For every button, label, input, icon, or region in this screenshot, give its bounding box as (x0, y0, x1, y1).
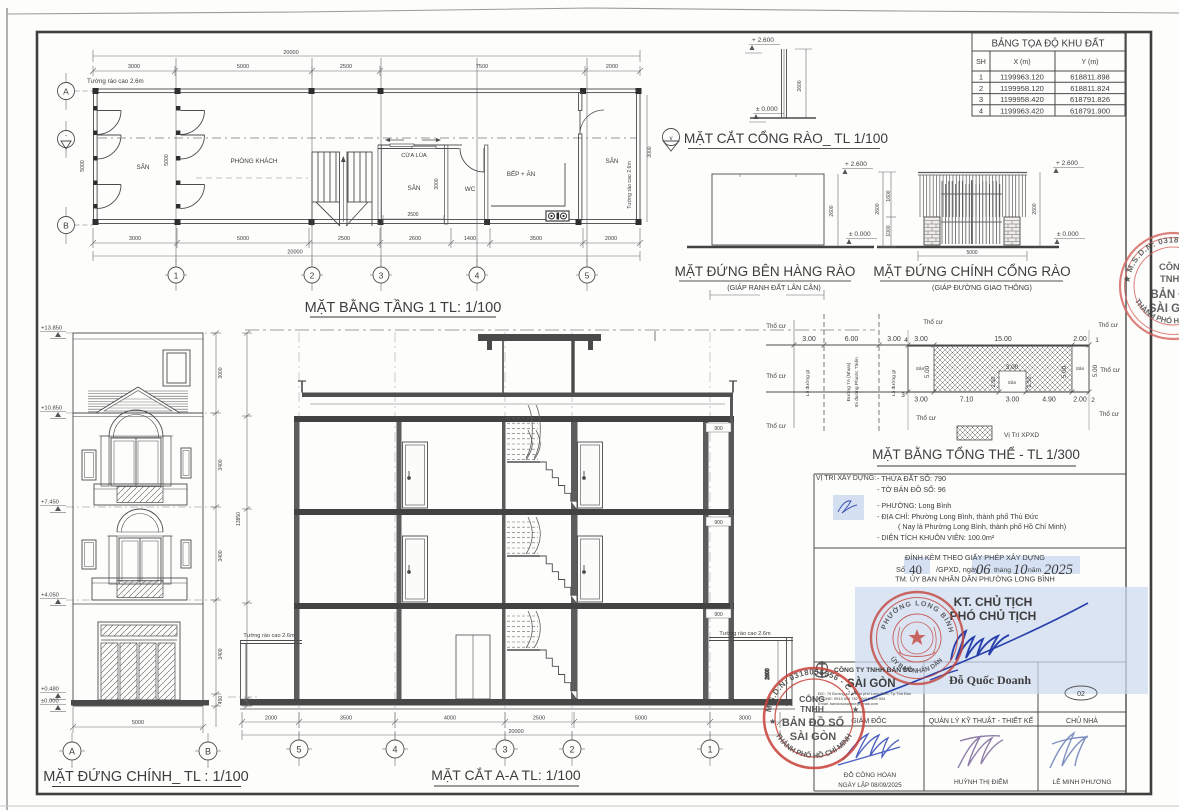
svg-text:CÔNG: CÔNG (1159, 261, 1179, 272)
svg-text:(GIÁP ĐƯỜNG GIAO THÔNG): (GIÁP ĐƯỜNG GIAO THÔNG) (932, 283, 1032, 292)
svg-text:± 0.000: ± 0.000 (1057, 231, 1079, 238)
svg-text:KT. CHỦ TỊCH: KT. CHỦ TỊCH (954, 594, 1033, 609)
svg-text:2: 2 (310, 271, 315, 281)
svg-text:3500: 3500 (340, 716, 352, 722)
svg-text:CÔNG: CÔNG (799, 693, 825, 704)
svg-text:3400: 3400 (218, 459, 224, 470)
svg-text:Đỗ Quốc Doanh: Đỗ Quốc Doanh (949, 673, 1031, 687)
svg-text:Lộ đường gt: Lộ đường gt (891, 369, 897, 396)
svg-text:5000: 5000 (132, 720, 144, 726)
svg-text:Thổ cư: Thổ cư (916, 415, 936, 422)
svg-text:2600: 2600 (875, 203, 881, 214)
svg-text:2.00: 2.00 (1073, 336, 1087, 343)
svg-text:1: 1 (979, 73, 983, 82)
svg-text:Email: bandososaigon@gmail.com: Email: bandososaigon@gmail.com (818, 701, 878, 706)
svg-text:20000: 20000 (508, 729, 523, 735)
svg-text:+ 2.600: + 2.600 (1056, 160, 1078, 167)
svg-text:Đi đường Phước Thiện: Đi đường Phước Thiện (854, 357, 860, 407)
svg-text:SÀI GÒN: SÀI GÒN (790, 730, 837, 743)
svg-text:SH: SH (976, 59, 986, 66)
svg-text:★: ★ (769, 717, 776, 726)
svg-text:1: 1 (707, 745, 712, 755)
svg-text:1: 1 (174, 271, 179, 281)
svg-text:4: 4 (979, 106, 983, 115)
svg-text:-: - (65, 133, 67, 139)
svg-text:02: 02 (1077, 691, 1085, 698)
svg-text:B: B (63, 221, 69, 231)
svg-text:900: 900 (714, 520, 723, 526)
svg-text:3.00: 3.00 (914, 397, 928, 404)
svg-text:Đường 7A (Nhựa): Đường 7A (Nhựa) (846, 362, 852, 401)
svg-text:2000: 2000 (605, 236, 617, 242)
svg-text:3000: 3000 (434, 178, 440, 189)
svg-text:20000: 20000 (287, 250, 302, 256)
svg-text:v: v (670, 136, 673, 142)
svg-text:A: A (63, 87, 69, 97)
svg-text:SÀI GÒN: SÀI GÒN (1149, 302, 1179, 315)
svg-text:Thổ cư: Thổ cư (1099, 411, 1119, 418)
svg-text:7.10: 7.10 (960, 397, 974, 404)
svg-text:3: 3 (379, 271, 384, 281)
svg-text:3.00: 3.00 (802, 336, 816, 343)
svg-text:- PHƯỜNG: Long Bình: - PHƯỜNG: Long Bình (877, 501, 951, 510)
svg-text:ĐÍNH KÈM THEO GIẤY PHÉP XÂY DỰ: ĐÍNH KÈM THEO GIẤY PHÉP XÂY DỰNG (905, 552, 1045, 562)
svg-text:3500: 3500 (530, 236, 542, 242)
svg-text:+10.850: +10.850 (41, 406, 62, 412)
svg-text:1199958.120: 1199958.120 (1000, 84, 1044, 93)
svg-text:5: 5 (296, 745, 301, 755)
svg-text:5000: 5000 (164, 154, 170, 166)
svg-text:NGÀY LẬP 08/09/2025: NGÀY LẬP 08/09/2025 (838, 782, 902, 789)
svg-text:VỊ TRÍ XÂY DỰNG:: VỊ TRÍ XÂY DỰNG: (816, 473, 876, 482)
svg-text:± 0.000: ± 0.000 (849, 231, 871, 238)
svg-text:5.00: 5.00 (924, 365, 931, 378)
svg-text:2600: 2600 (409, 236, 421, 242)
svg-text:Sân: Sân (1076, 366, 1085, 372)
svg-text:Tường rào cao 2.6m: Tường rào cao 2.6m (719, 631, 771, 637)
svg-text:X (m): X (m) (1013, 59, 1030, 66)
svg-text:MẶT CẮT A-A TL: 1/100: MẶT CẮT A-A TL: 1/100 (431, 766, 581, 783)
svg-text:3: 3 (901, 392, 905, 399)
svg-text:LÊ MINH PHƯƠNG: LÊ MINH PHƯƠNG (1053, 777, 1112, 786)
svg-text:Tường rào cao 2.6m: Tường rào cao 2.6m (243, 633, 295, 639)
svg-text:Thổ cư: Thổ cư (766, 323, 786, 330)
svg-text:2600: 2600 (797, 80, 803, 91)
svg-text:2600: 2600 (829, 205, 835, 216)
svg-text:2.50: 2.50 (991, 377, 997, 388)
svg-text:- THỬA ĐẤT SỐ: 790: - THỬA ĐẤT SỐ: 790 (877, 473, 946, 483)
svg-text:2600: 2600 (765, 668, 771, 679)
svg-text:MẶT BẰNG TỔNG THỂ - TL 1/300: MẶT BẰNG TỔNG THỂ - TL 1/300 (872, 447, 1080, 462)
svg-text:HUỲNH THỊ ĐIỂM: HUỲNH THỊ ĐIỂM (954, 777, 1008, 786)
svg-text:3.00: 3.00 (914, 336, 928, 343)
svg-text:PHÓ CHỦ TỊCH: PHÓ CHỦ TỊCH (950, 608, 1037, 623)
svg-text:MẶT ĐỨNG CHÍNH CỔNG RÀO: MẶT ĐỨNG CHÍNH CỔNG RÀO (873, 264, 1070, 279)
svg-text:2.50: 2.50 (1027, 377, 1033, 388)
svg-text:± 0.000: ± 0.000 (756, 106, 778, 113)
svg-text:Sân: Sân (1008, 380, 1017, 386)
svg-text:( Nay là Phường Long Bình, thà: ( Nay là Phường Long Bình, thành phố Hồ … (898, 522, 1066, 531)
svg-text:1000: 1000 (886, 225, 892, 236)
svg-text:2: 2 (569, 745, 574, 755)
svg-text:618791.826: 618791.826 (1070, 95, 1110, 104)
svg-text:3.00: 3.00 (1006, 397, 1020, 404)
svg-text:B: B (205, 747, 211, 757)
svg-text:Thổ cư: Thổ cư (1098, 322, 1118, 329)
svg-text:3000: 3000 (739, 716, 751, 722)
svg-text:5000: 5000 (80, 160, 86, 172)
svg-text:4: 4 (904, 337, 908, 344)
svg-text:- TỜ BẢN ĐỒ SỐ: 96: - TỜ BẢN ĐỒ SỐ: 96 (877, 484, 946, 494)
svg-text:3400: 3400 (218, 648, 224, 659)
svg-text:SÂN: SÂN (137, 162, 150, 171)
svg-text:SÂN: SÂN (606, 156, 619, 165)
svg-text:5000: 5000 (237, 64, 249, 70)
svg-text:2.00: 2.00 (1073, 397, 1087, 404)
svg-text:2000: 2000 (606, 64, 618, 70)
svg-text:2500: 2500 (340, 64, 352, 70)
svg-text:SÂN: SÂN (408, 183, 421, 192)
svg-text:A: A (69, 747, 75, 757)
svg-text:MẶT ĐỨNG BÊN HÀNG RÀO: MẶT ĐỨNG BÊN HÀNG RÀO (675, 264, 856, 279)
svg-text:1199963.120: 1199963.120 (1000, 73, 1044, 82)
svg-text:900: 900 (714, 612, 723, 618)
svg-text:618811.898: 618811.898 (1070, 73, 1110, 82)
svg-text:MẶT BẰNG TẦNG 1 TL: 1/100: MẶT BẰNG TẦNG 1 TL: 1/100 (305, 298, 502, 316)
svg-text:3.00: 3.00 (887, 336, 901, 343)
svg-text:Vị Trí XPXD: Vị Trí XPXD (1004, 432, 1039, 439)
svg-text:TM. ỦY BAN NHÂN DÂN PHƯỜNG LON: TM. ỦY BAN NHÂN DÂN PHƯỜNG LONG BÌNH (895, 575, 1055, 584)
svg-text:+0.480: +0.480 (41, 687, 59, 693)
svg-text:Thổ cư: Thổ cư (1100, 367, 1120, 374)
svg-text:15.00: 15.00 (994, 336, 1012, 343)
svg-text:1400: 1400 (464, 236, 476, 242)
svg-text:+ 2.600: + 2.600 (752, 37, 774, 44)
svg-text:WC: WC (465, 186, 476, 193)
svg-text:Thổ cư: Thổ cư (766, 423, 786, 430)
svg-text:BẢN ĐỒ: BẢN ĐỒ (1150, 288, 1179, 301)
svg-text:CHỦ NHÀ: CHỦ NHÀ (1066, 716, 1098, 725)
svg-text:3000: 3000 (647, 146, 653, 157)
svg-text:Thổ cư: Thổ cư (766, 373, 786, 380)
svg-text:CỪA LÙA: CỪA LÙA (401, 152, 427, 159)
svg-text:- ĐỊA CHỈ: Phường Long Bình,: - ĐỊA CHỈ: Phường Long Bình, thành phố T… (877, 512, 1039, 521)
svg-text:618791.900: 618791.900 (1070, 106, 1110, 115)
svg-text:±0.000: ±0.000 (41, 699, 59, 705)
svg-text:5.00: 5.00 (1092, 364, 1099, 377)
svg-text:+ 2.600: + 2.600 (845, 161, 867, 168)
svg-text:13850: 13850 (236, 512, 242, 526)
svg-text:2: 2 (1091, 397, 1095, 404)
svg-text:+13.850: +13.850 (41, 326, 62, 332)
svg-text:20000: 20000 (283, 50, 298, 56)
svg-text:BẢNG TỌA ĐỘ KHU ĐẤT: BẢNG TỌA ĐỘ KHU ĐẤT (991, 38, 1104, 50)
svg-text:2600: 2600 (1032, 203, 1038, 214)
svg-text:TNHH: TNHH (800, 704, 824, 714)
svg-text:5000: 5000 (635, 716, 647, 722)
svg-text:Số: Số (896, 565, 905, 574)
svg-text:PHÒNG KHÁCH: PHÒNG KHÁCH (231, 156, 278, 165)
svg-text:3.00: 3.00 (1006, 364, 1019, 371)
svg-text:2: 2 (979, 84, 983, 93)
svg-text:3000: 3000 (129, 236, 141, 242)
svg-text:★: ★ (852, 705, 859, 714)
svg-text:7500: 7500 (476, 64, 488, 70)
svg-text:+4.050: +4.050 (41, 593, 59, 599)
svg-text:Tường rào cao 2.6m: Tường rào cao 2.6m (627, 161, 633, 209)
svg-text:MẶT CẮT CỔNG RÀO_ TL 1/100: MẶT CẮT CỔNG RÀO_ TL 1/100 (684, 129, 889, 146)
svg-text:TNHH: TNHH (1160, 273, 1179, 284)
svg-text:900: 900 (714, 426, 723, 432)
svg-text:2000: 2000 (265, 716, 277, 722)
svg-text:3000: 3000 (218, 367, 224, 378)
svg-text:/GPXD, ngày: /GPXD, ngày (936, 565, 979, 574)
svg-text:4: 4 (475, 271, 480, 281)
svg-text:1: 1 (1095, 337, 1099, 344)
svg-text:3: 3 (502, 745, 507, 755)
svg-text:618811.824: 618811.824 (1070, 84, 1110, 93)
svg-text:1600: 1600 (886, 190, 892, 201)
svg-text:6.00: 6.00 (845, 336, 859, 343)
svg-text:Lộ đường gt: Lộ đường gt (805, 369, 811, 396)
svg-text:1199963.420: 1199963.420 (1000, 106, 1044, 115)
svg-text:ĐỖ CÔNG HOAN: ĐỖ CÔNG HOAN (844, 770, 897, 779)
svg-text:2500: 2500 (407, 212, 418, 218)
svg-text:5000: 5000 (966, 250, 977, 256)
svg-text:Y (m): Y (m) (1082, 59, 1099, 66)
svg-text:3400: 3400 (218, 550, 224, 561)
svg-text:5: 5 (585, 271, 590, 281)
svg-text:2500: 2500 (338, 236, 350, 242)
svg-text:4: 4 (392, 745, 397, 755)
svg-text:5.00: 5.00 (1061, 365, 1068, 378)
svg-text:450: 450 (218, 696, 224, 705)
svg-text:3000: 3000 (128, 64, 140, 70)
svg-text:5000: 5000 (237, 236, 249, 242)
svg-text:4000: 4000 (444, 716, 456, 722)
svg-text:tháng: tháng (994, 567, 1011, 574)
svg-text:- DIỆN TÍCH KHUÔN VIÊN: 100.0m: - DIỆN TÍCH KHUÔN VIÊN: 100.0m² (877, 533, 995, 542)
svg-text:1199958.420: 1199958.420 (1000, 95, 1044, 104)
svg-text:4.90: 4.90 (1042, 397, 1056, 404)
svg-text:BẢN ĐỒ SỐ: BẢN ĐỒ SỐ (782, 715, 845, 729)
svg-text:3: 3 (979, 95, 983, 104)
svg-text:(GIÁP RANH ĐẤT LÂN CẬN): (GIÁP RANH ĐẤT LÂN CẬN) (727, 282, 821, 292)
svg-text:2500: 2500 (533, 716, 545, 722)
svg-text:Tường rào cao 2.6m: Tường rào cao 2.6m (87, 78, 144, 85)
svg-text:năm: năm (1028, 567, 1042, 574)
svg-text:+7.450: +7.450 (41, 500, 59, 506)
svg-text:Thổ cư: Thổ cư (923, 319, 943, 326)
svg-text:MẶT ĐỨNG CHÍNH_ TL : 1/100: MẶT ĐỨNG CHÍNH_ TL : 1/100 (43, 768, 249, 785)
